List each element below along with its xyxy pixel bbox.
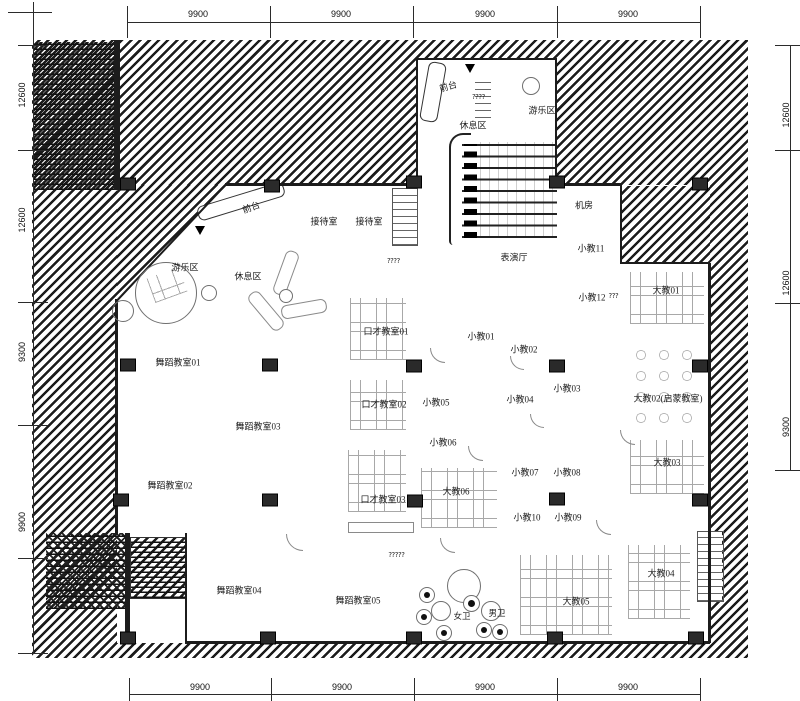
column <box>113 494 129 507</box>
cabinet-koucai03 <box>348 522 414 533</box>
wall-top-left <box>114 40 120 190</box>
room-label: 小教10 <box>513 511 540 524</box>
column <box>549 360 565 373</box>
dim-tick <box>18 653 48 654</box>
room-label: 小教03 <box>553 382 580 395</box>
room-label: 舞蹈教室04 <box>216 584 261 597</box>
dim-tick <box>414 678 415 701</box>
play-circle-2 <box>112 300 134 322</box>
column <box>262 494 278 507</box>
room-label: 小教07 <box>511 466 538 479</box>
dim-label: 9900 <box>17 512 27 532</box>
room-label: 舞蹈教室05 <box>335 594 380 607</box>
column <box>549 493 565 506</box>
zone-label-play: 游乐区 <box>171 261 198 274</box>
wall-dajiao01-top <box>622 262 710 264</box>
wall-top-a <box>225 183 418 186</box>
room-label: 大教03 <box>653 456 680 469</box>
dim-line-left <box>33 2 34 653</box>
desks-dajiao06 <box>421 468 497 528</box>
dim-tick <box>270 6 271 38</box>
dim-tick <box>700 6 701 38</box>
floor-plan-drawing: 前台 游乐区 休息区 前台 游乐区 休息区 表演厅 女卫 男卫 接待室 接待室 … <box>0 0 800 701</box>
dim-label: 9900 <box>618 682 638 692</box>
stair-block-bottom-left-2 <box>130 537 187 599</box>
stair-block-top-left <box>34 42 117 190</box>
column <box>262 359 278 372</box>
stairs-bottom-right <box>697 531 724 602</box>
column <box>120 359 136 372</box>
hatch-patch-top-right <box>622 186 710 264</box>
hall-curved-wall <box>449 133 471 245</box>
room-label: 小教02 <box>510 343 537 356</box>
wall-strip-right <box>555 58 557 187</box>
text-artifact: ????? <box>388 551 404 559</box>
room-label: 舞蹈教室03 <box>235 420 280 433</box>
room-label: 舞蹈教室02 <box>147 479 192 492</box>
wall-strip-top <box>416 58 557 60</box>
wall-bottom-left <box>125 533 130 643</box>
zone-label-wc-male: 男卫 <box>488 607 505 619</box>
column <box>120 178 136 191</box>
dim-label: 12600 <box>781 102 791 127</box>
room-label: 小教08 <box>553 466 580 479</box>
wc-stool-1 <box>419 587 435 603</box>
dim-label: 9900 <box>618 9 638 19</box>
dim-tick <box>18 45 48 46</box>
room-label: 大教05 <box>562 595 589 608</box>
column <box>407 495 423 508</box>
dim-tick <box>18 558 48 559</box>
dim-label: 9900 <box>190 682 210 692</box>
dim-tick <box>557 6 558 38</box>
zone-label-hall: 表演厅 <box>500 251 527 264</box>
level-marker-icon <box>465 64 475 73</box>
dim-tick <box>775 470 800 471</box>
desks-dajiao04 <box>628 545 690 619</box>
room-label: 小教04 <box>506 393 533 406</box>
dim-tick <box>700 678 701 701</box>
zone-label-wc-female: 女卫 <box>453 610 470 622</box>
dim-label: 9900 <box>475 682 495 692</box>
dim-tick <box>18 150 48 151</box>
dim-tick <box>8 12 52 13</box>
column <box>260 632 276 645</box>
room-label: 舞蹈教室01 <box>155 356 200 369</box>
wc-stool-5 <box>476 622 492 638</box>
column <box>120 632 136 645</box>
dim-label: 9900 <box>475 9 495 19</box>
room-label: 小教09 <box>554 511 581 524</box>
column <box>406 360 422 373</box>
wall-wudao04-left <box>185 533 187 643</box>
play-circle-3 <box>201 285 217 301</box>
room-label: 大教04 <box>647 567 674 580</box>
mats-dajiao02 <box>630 345 704 425</box>
stair-block-bottom-left <box>46 533 126 609</box>
wall-top-b <box>557 183 622 186</box>
wc-stool-6 <box>492 624 508 640</box>
room-label: 接待室 <box>355 215 382 228</box>
dim-tick <box>557 678 558 701</box>
column <box>406 632 422 645</box>
dim-tick <box>775 150 800 151</box>
room-label: 小教05 <box>422 396 449 409</box>
dim-tick <box>775 303 800 304</box>
room-label: 大教01 <box>652 284 679 297</box>
wall-right <box>708 263 711 643</box>
dim-label: 12600 <box>17 207 27 232</box>
dim-label: 9900 <box>332 682 352 692</box>
level-marker-icon <box>195 226 205 235</box>
dim-tick <box>127 6 128 38</box>
zone-label-play-top: 游乐区 <box>528 104 555 117</box>
column <box>549 176 565 189</box>
dim-label: 9300 <box>17 342 27 362</box>
dim-tick <box>271 678 272 701</box>
desks-dajiao01 <box>630 272 704 324</box>
dim-label: 9900 <box>331 9 351 19</box>
dim-tick <box>129 678 130 701</box>
wc-circle-a <box>431 601 451 621</box>
dim-tick <box>413 6 414 38</box>
room-label: 大教02(启蒙教室) <box>634 392 703 405</box>
zone-label-rest-top: 休息区 <box>459 119 486 132</box>
column <box>264 180 280 193</box>
dim-label: 12600 <box>781 270 791 295</box>
rest-table <box>279 289 293 303</box>
dim-tick <box>18 302 48 303</box>
column <box>547 632 563 645</box>
room-label: 小教12 <box>578 291 605 304</box>
dim-line-bottom <box>129 694 701 695</box>
wall-strip-left <box>416 58 418 187</box>
room-label: 小教06 <box>429 436 456 449</box>
column <box>692 360 708 373</box>
column <box>406 176 422 189</box>
column <box>692 494 708 507</box>
text-artifact: ???? <box>387 257 400 265</box>
dim-label: 12600 <box>17 82 27 107</box>
wall-patch-left <box>620 185 622 264</box>
column <box>692 178 708 191</box>
play-structure-circle <box>522 77 540 95</box>
stairs-reception <box>392 188 418 246</box>
room-label: 小教01 <box>467 330 494 343</box>
wc-stool-3 <box>436 625 452 641</box>
zone-label-rest: 休息区 <box>234 270 261 283</box>
room-label: 机房 <box>575 199 593 212</box>
column <box>688 632 704 645</box>
dim-label: 9900 <box>188 9 208 19</box>
room-label: 大教06 <box>442 485 469 498</box>
dim-line-top <box>127 22 701 23</box>
room-label: 口才教室01 <box>363 325 408 338</box>
room-label: 口才教室03 <box>360 493 405 506</box>
room-label: 口才教室02 <box>361 398 406 411</box>
room-label: 接待室 <box>310 215 337 228</box>
dim-tick <box>775 45 800 46</box>
dim-tick <box>18 425 48 426</box>
text-artifact: ???? <box>472 93 485 101</box>
room-label: 小教11 <box>578 242 605 255</box>
wc-stool-2 <box>416 609 432 625</box>
dim-label: 9300 <box>781 417 791 437</box>
text-artifact: ??? <box>608 292 618 300</box>
